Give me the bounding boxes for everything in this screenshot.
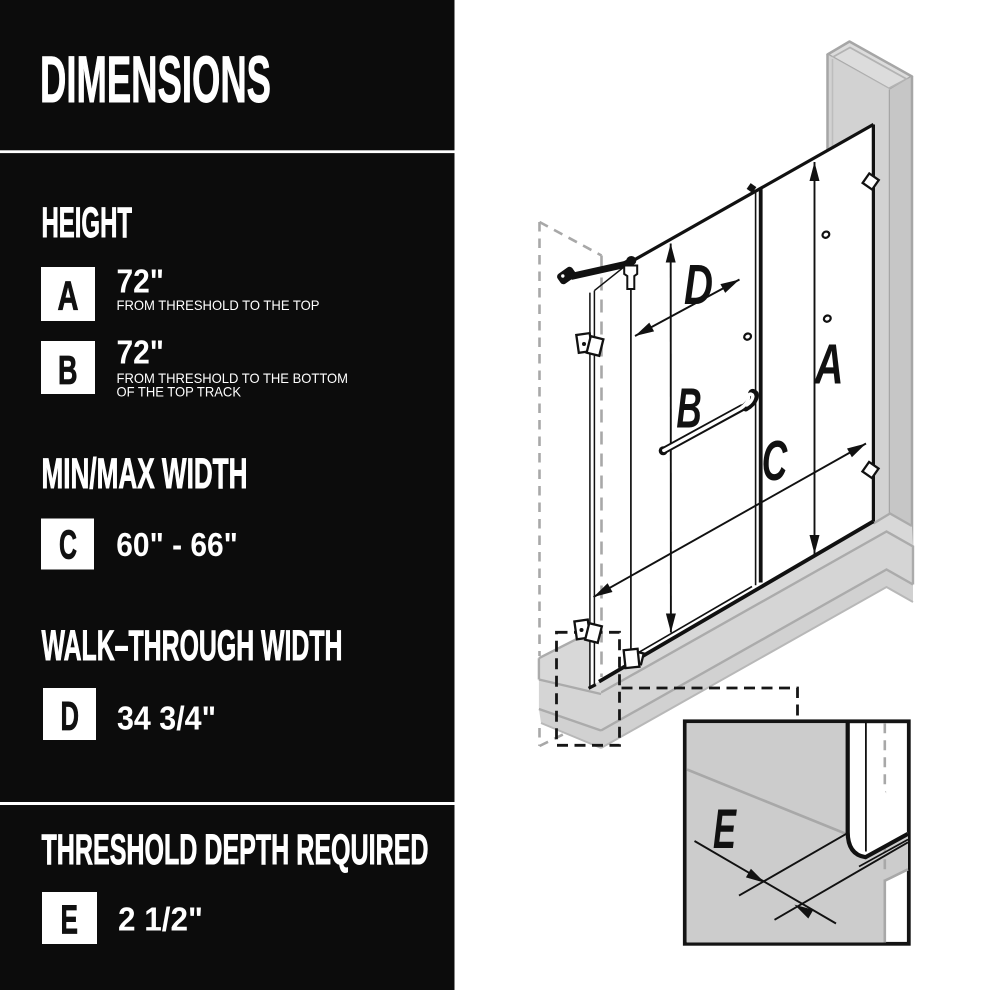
svg-text:72": 72" [117, 263, 165, 300]
svg-text:D: D [684, 253, 713, 317]
svg-text:A: A [58, 273, 79, 319]
svg-text:72": 72" [117, 334, 165, 371]
svg-text:B: B [58, 347, 78, 393]
svg-text:2 1/2": 2 1/2" [118, 901, 203, 938]
svg-text:34 3/4": 34 3/4" [117, 700, 216, 737]
svg-text:OF THE TOP TRACK: OF THE TOP TRACK [117, 385, 242, 400]
svg-text:E: E [61, 897, 79, 943]
svg-text:D: D [61, 693, 80, 739]
svg-text:HEIGHT: HEIGHT [42, 199, 133, 247]
svg-text:MIN/MAX WIDTH: MIN/MAX WIDTH [42, 450, 248, 498]
svg-text:WALK–THROUGH WIDTH: WALK–THROUGH WIDTH [42, 622, 343, 670]
svg-text:C: C [762, 429, 788, 493]
svg-text:60" - 66": 60" - 66" [116, 526, 238, 563]
svg-text:E: E [713, 797, 737, 860]
svg-text:C: C [59, 522, 77, 568]
svg-text:THRESHOLD DEPTH REQUIRED: THRESHOLD DEPTH REQUIRED [42, 826, 429, 874]
svg-text:FROM THRESHOLD TO THE TOP: FROM THRESHOLD TO THE TOP [117, 298, 320, 313]
svg-text:DIMENSIONS: DIMENSIONS [40, 42, 271, 116]
svg-text:A: A [813, 333, 843, 397]
